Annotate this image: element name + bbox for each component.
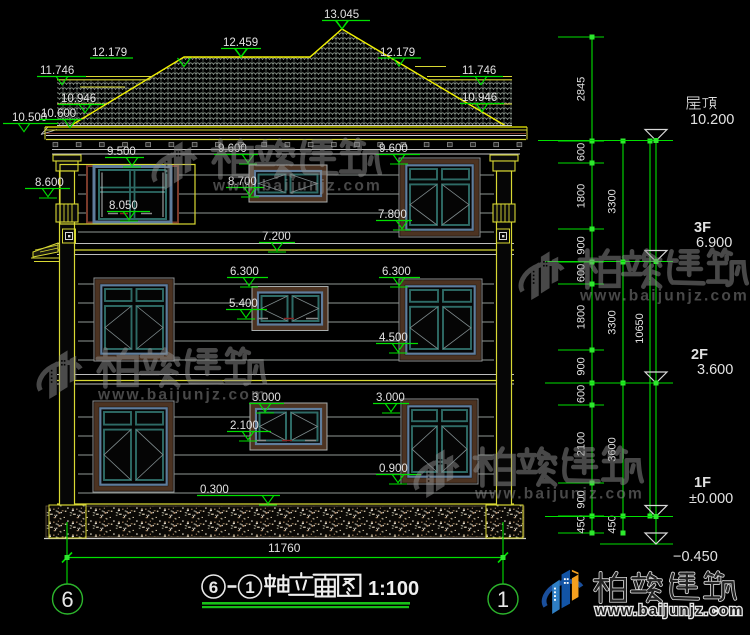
svg-text:9.500: 9.500	[107, 146, 136, 158]
svg-text:1F: 1F	[694, 475, 711, 491]
svg-text:11760: 11760	[268, 541, 301, 555]
svg-text:0.300: 0.300	[200, 484, 229, 496]
svg-text:www.baijunjz.com: www.baijunjz.com	[212, 178, 382, 195]
svg-text:3300: 3300	[607, 310, 619, 334]
svg-text:5.400: 5.400	[229, 298, 258, 310]
svg-text:13.045: 13.045	[324, 9, 359, 21]
svg-text:www.baijunjz.com: www.baijunjz.com	[594, 602, 744, 619]
svg-text:www.baijunjz.com: www.baijunjz.com	[474, 486, 644, 503]
svg-text:0.900: 0.900	[379, 463, 408, 475]
svg-text:4.500: 4.500	[379, 332, 408, 344]
svg-text:10.946: 10.946	[462, 92, 497, 104]
svg-text:600: 600	[576, 385, 588, 403]
svg-text:2F: 2F	[691, 347, 708, 363]
svg-text:7.200: 7.200	[262, 231, 291, 243]
svg-text:www.baijunjz.com: www.baijunjz.com	[97, 387, 267, 404]
svg-text:1: 1	[497, 587, 509, 612]
svg-text:8.050: 8.050	[109, 200, 138, 212]
svg-text:6: 6	[61, 587, 73, 612]
svg-text:450: 450	[576, 515, 588, 533]
svg-text:11.746: 11.746	[462, 65, 496, 77]
svg-text:−0.450: −0.450	[673, 549, 718, 565]
svg-text:3300: 3300	[607, 189, 619, 213]
svg-text:12.179: 12.179	[92, 47, 127, 59]
svg-text:±0.000: ±0.000	[689, 491, 733, 507]
svg-text:3.000: 3.000	[376, 392, 405, 404]
svg-text:www.baijunjz.com: www.baijunjz.com	[579, 288, 749, 305]
svg-text:1:100: 1:100	[368, 578, 419, 600]
svg-text:2.100: 2.100	[230, 420, 259, 432]
svg-text:3F: 3F	[694, 220, 711, 236]
svg-text:10.200: 10.200	[690, 112, 734, 128]
svg-text:10650: 10650	[634, 313, 646, 344]
svg-text:11.746: 11.746	[40, 65, 74, 77]
svg-text:900: 900	[576, 357, 588, 375]
svg-text:1: 1	[245, 578, 254, 597]
svg-text:6.300: 6.300	[382, 266, 411, 278]
svg-text:6.300: 6.300	[230, 266, 259, 278]
svg-text:2845: 2845	[576, 77, 588, 101]
svg-text:450: 450	[607, 515, 619, 533]
svg-text:8.600: 8.600	[35, 177, 64, 189]
svg-text:10.600: 10.600	[41, 108, 76, 120]
svg-text:600: 600	[576, 143, 588, 161]
svg-text:1800: 1800	[576, 184, 588, 208]
svg-text:12.459: 12.459	[223, 37, 258, 49]
svg-text:3.600: 3.600	[697, 362, 733, 378]
svg-text:1800: 1800	[576, 305, 588, 329]
svg-text:9.600: 9.600	[379, 143, 408, 155]
svg-text:10.946: 10.946	[61, 93, 96, 105]
svg-text:7.800: 7.800	[378, 209, 407, 221]
svg-text:12.179: 12.179	[380, 47, 415, 59]
svg-text:6: 6	[209, 578, 218, 597]
